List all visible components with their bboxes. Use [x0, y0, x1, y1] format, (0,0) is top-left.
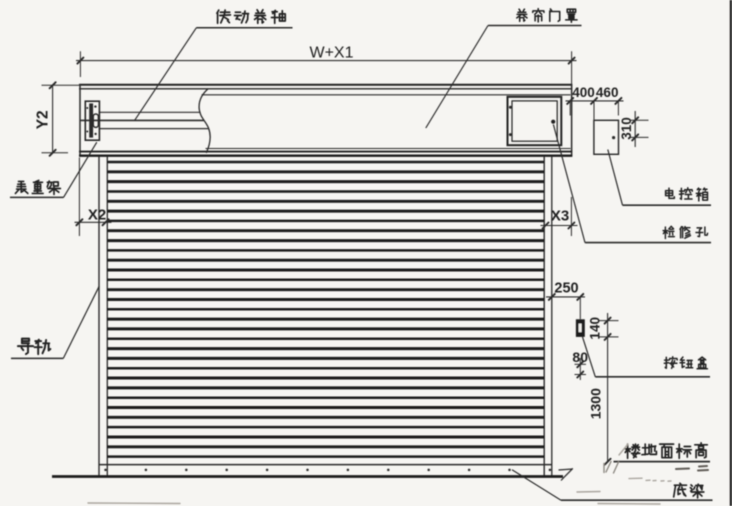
svg-text:X3: X3	[551, 208, 569, 225]
svg-text:460: 460	[596, 85, 619, 100]
svg-text:Y2: Y2	[34, 110, 51, 129]
svg-text:250: 250	[554, 281, 578, 297]
svg-text:310: 310	[619, 117, 634, 140]
svg-text:1300: 1300	[588, 388, 604, 419]
svg-text:140: 140	[588, 317, 603, 340]
svg-text:W+X1: W+X1	[309, 45, 353, 62]
svg-text:400: 400	[572, 85, 595, 100]
svg-text:80: 80	[572, 349, 588, 365]
svg-text:X2: X2	[88, 207, 106, 224]
